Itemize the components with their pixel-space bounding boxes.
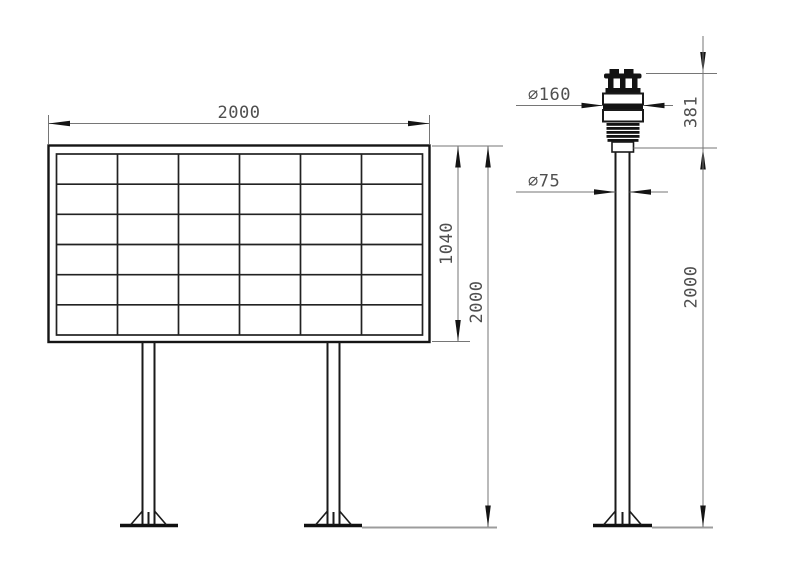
louver-rib — [607, 131, 640, 134]
gusset — [630, 511, 642, 525]
dim-sensor-height: 381 — [634, 52, 718, 170]
drawing-svg: 2000 1040 2000 ∅160 — [0, 0, 800, 563]
dim-sensor-diameter: ∅160 — [516, 85, 673, 108]
arrowhead-right — [582, 103, 604, 109]
dim-sensor-height-label: 381 — [682, 96, 702, 128]
weather-sensor-head — [603, 69, 643, 152]
arrowhead-left — [630, 189, 652, 195]
sensor-post — [632, 79, 638, 89]
board-leg-right — [328, 342, 340, 525]
dim-board-overall-height-label: 2000 — [467, 281, 487, 324]
dim-board-width-label: 2000 — [218, 103, 261, 123]
sensor-body-upper — [603, 94, 643, 105]
mounting-pole — [616, 152, 630, 525]
dim-board-width: 2000 — [49, 103, 430, 144]
louver-rib — [607, 123, 640, 126]
louver-rib — [607, 135, 640, 138]
dim-pole-diameter: ∅75 — [516, 172, 668, 195]
pole-foot — [593, 511, 652, 526]
dim-pole-height-label: 2000 — [682, 266, 702, 309]
sensor-pole-side-view — [593, 69, 652, 526]
dim-sensor-diameter-label: ∅160 — [528, 85, 571, 105]
arrowhead-up — [485, 146, 491, 168]
arrowhead-down — [455, 320, 461, 342]
arrowhead-down — [485, 506, 491, 528]
sensor-louver-ribs — [607, 123, 640, 142]
gusset — [340, 511, 352, 525]
sensor-post — [608, 79, 614, 89]
arrowhead-down — [700, 506, 706, 528]
board-foot-left — [120, 511, 178, 526]
gusset — [131, 511, 143, 525]
sensor-body-lower — [603, 110, 643, 122]
display-board-front-view — [49, 146, 430, 526]
dim-panel-height-label: 1040 — [437, 222, 457, 265]
arrowhead-left — [49, 121, 71, 127]
arrowhead-right — [594, 189, 616, 195]
board-leg-left — [143, 342, 155, 525]
dim-pole-diameter-label: ∅75 — [528, 172, 560, 192]
sensor-cap — [604, 74, 642, 79]
gusset — [604, 511, 616, 525]
sensor-top-knob — [610, 69, 620, 74]
dim-board-overall-height: 2000 — [467, 146, 491, 527]
arrowhead-up — [455, 146, 461, 168]
gusset — [316, 511, 328, 525]
panel-grid — [57, 154, 423, 335]
sensor-neck — [612, 142, 634, 152]
sensor-post — [620, 79, 626, 89]
louver-rib — [607, 127, 640, 130]
technical-drawing-canvas: 2000 1040 2000 ∅160 — [0, 0, 800, 563]
gusset — [155, 511, 167, 525]
sensor-top-knob — [624, 69, 634, 74]
board-foot-right — [304, 511, 362, 526]
arrowhead-right — [408, 121, 430, 127]
arrowhead-left — [643, 103, 665, 109]
